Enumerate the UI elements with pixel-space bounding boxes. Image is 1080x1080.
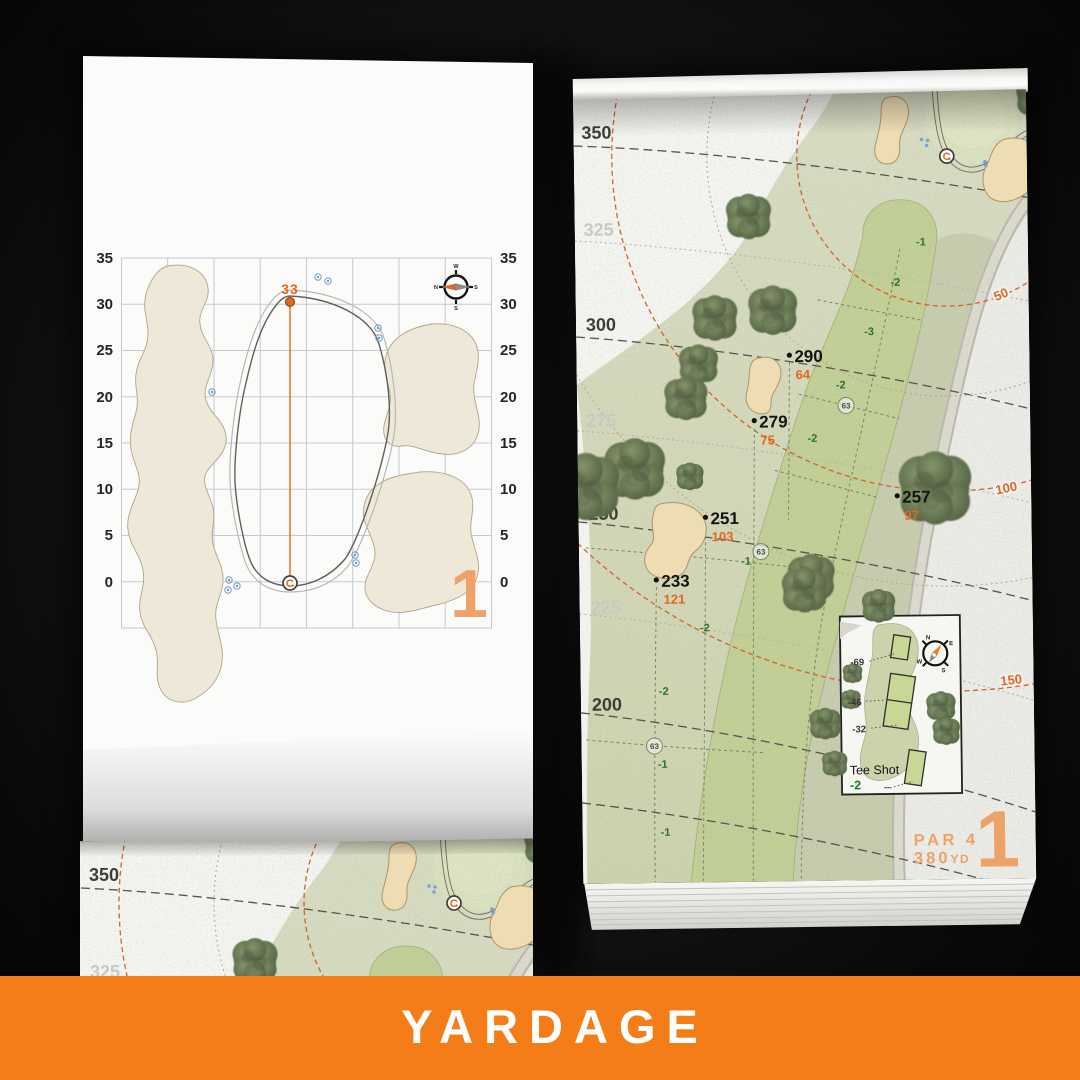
svg-text:20: 20 [96,389,113,406]
svg-text:30: 30 [500,296,517,313]
svg-text:25: 25 [500,342,517,359]
svg-text:20: 20 [500,389,517,406]
svg-text:33: 33 [281,281,299,297]
svg-text:35: 35 [500,250,517,267]
svg-text:S: S [474,285,478,291]
svg-text:0: 0 [500,574,508,591]
svg-text:15: 15 [500,435,517,452]
svg-text:5: 5 [500,527,508,544]
svg-text:5: 5 [105,527,113,544]
svg-text:30: 30 [96,296,113,313]
svg-text:YARDAGE: YARDAGE [401,1000,709,1053]
svg-text:0: 0 [105,574,113,591]
svg-text:35: 35 [96,250,113,267]
svg-text:25: 25 [96,342,113,359]
svg-text:W: W [453,264,459,270]
svg-text:1: 1 [450,556,488,632]
svg-text:10: 10 [96,481,113,498]
svg-text:S: S [454,306,458,312]
svg-text:N: N [434,285,438,291]
svg-text:10: 10 [500,481,517,498]
svg-text:15: 15 [96,435,113,452]
